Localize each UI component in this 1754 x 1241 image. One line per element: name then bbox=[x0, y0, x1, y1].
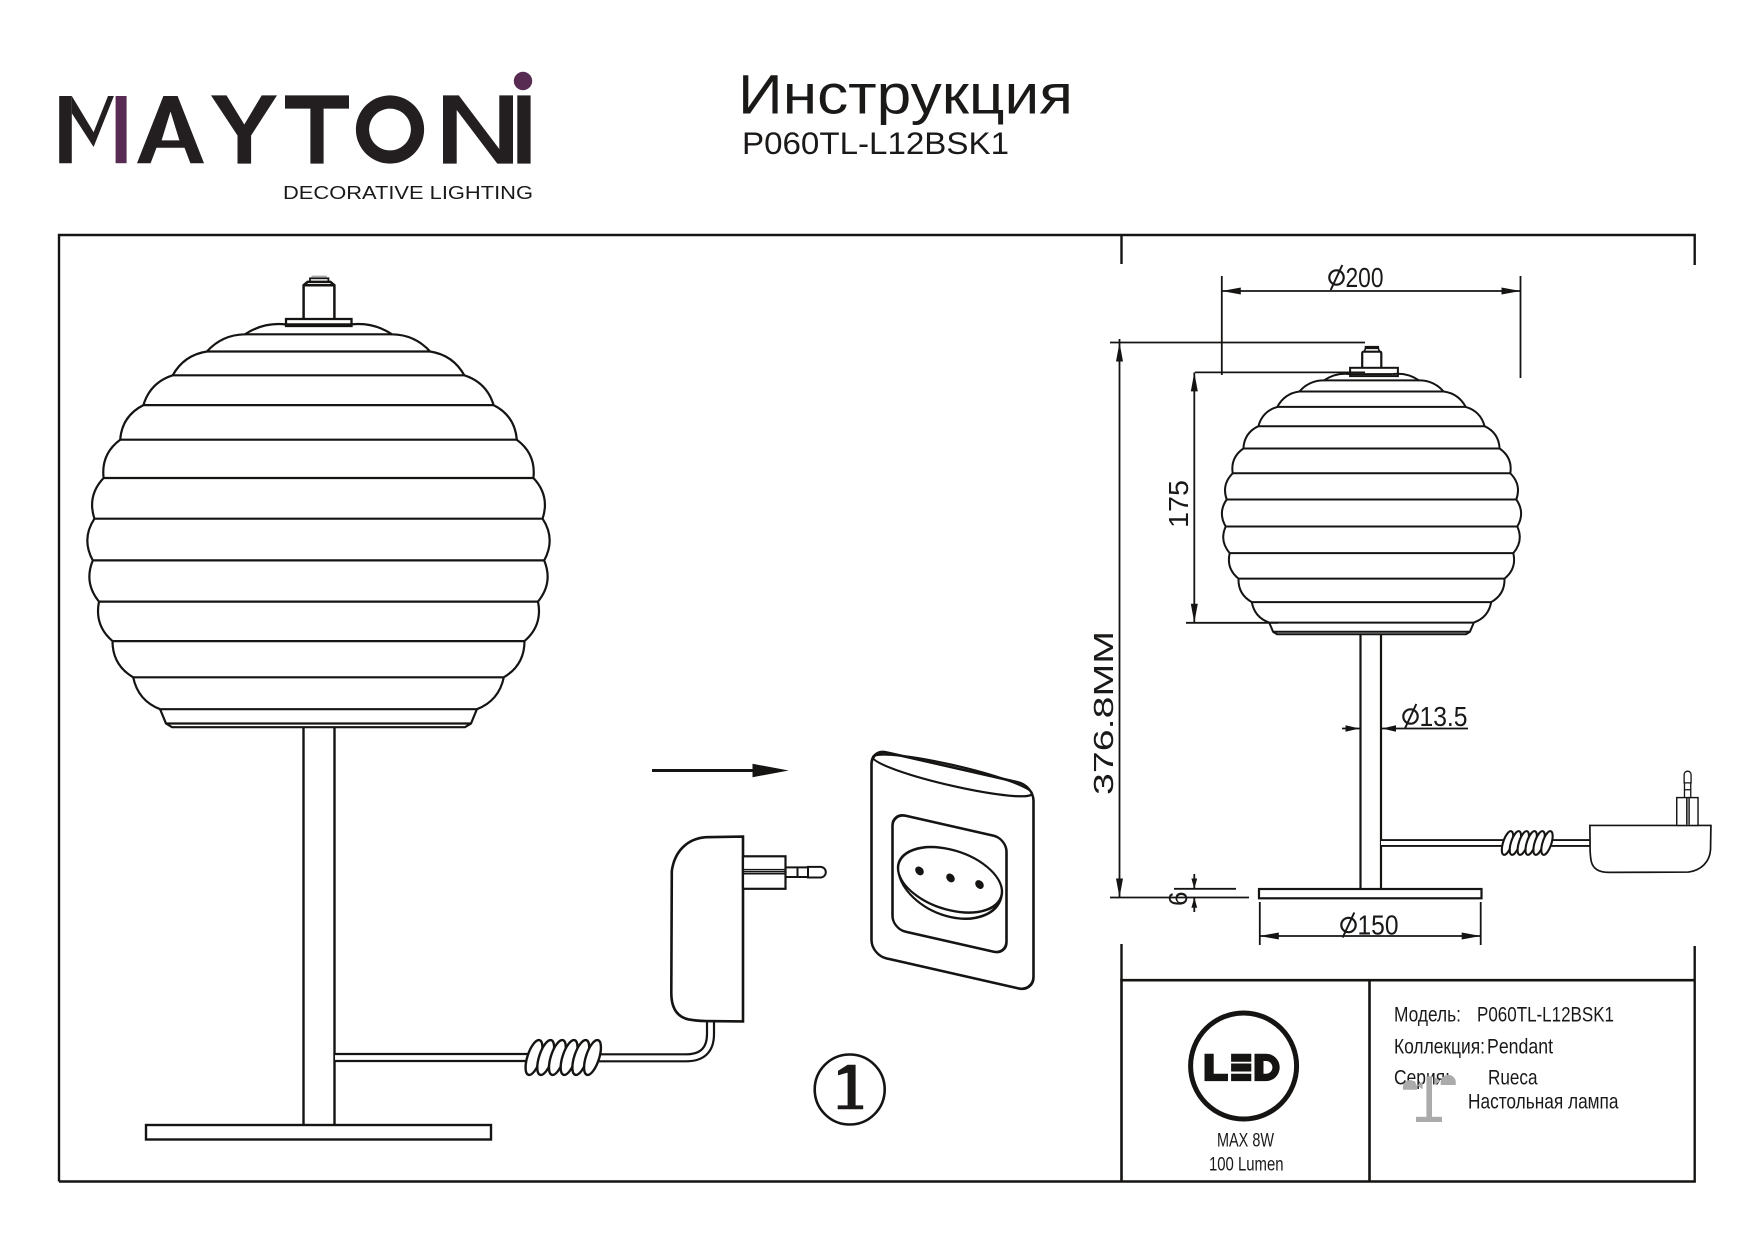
svg-text:MAX 8W: MAX 8W bbox=[1217, 1130, 1274, 1152]
svg-text:Коллекция:: Коллекция: bbox=[1394, 1035, 1485, 1059]
svg-text:100 Lumen: 100 Lumen bbox=[1209, 1154, 1284, 1176]
svg-text:Модель:: Модель: bbox=[1394, 1003, 1461, 1027]
svg-text:P060TL-L12BSK1: P060TL-L12BSK1 bbox=[742, 125, 1009, 161]
svg-text:Настольная лампа: Настольная лампа bbox=[1468, 1090, 1619, 1114]
svg-text:6: 6 bbox=[1163, 892, 1193, 906]
svg-text:175: 175 bbox=[1163, 480, 1194, 528]
svg-text:Pendant: Pendant bbox=[1487, 1035, 1553, 1059]
svg-text:376.8MM: 376.8MM bbox=[1088, 631, 1119, 795]
svg-text:P060TL-L12BSK1: P060TL-L12BSK1 bbox=[1477, 1003, 1614, 1027]
svg-text:Rueca: Rueca bbox=[1488, 1066, 1538, 1090]
svg-text:DECORATIVE LIGHTING: DECORATIVE LIGHTING bbox=[283, 183, 533, 203]
svg-text:Инструкция: Инструкция bbox=[738, 63, 1073, 126]
svg-text:13.5: 13.5 bbox=[1420, 701, 1468, 732]
svg-text:200: 200 bbox=[1346, 262, 1384, 293]
svg-text:150: 150 bbox=[1358, 910, 1399, 941]
